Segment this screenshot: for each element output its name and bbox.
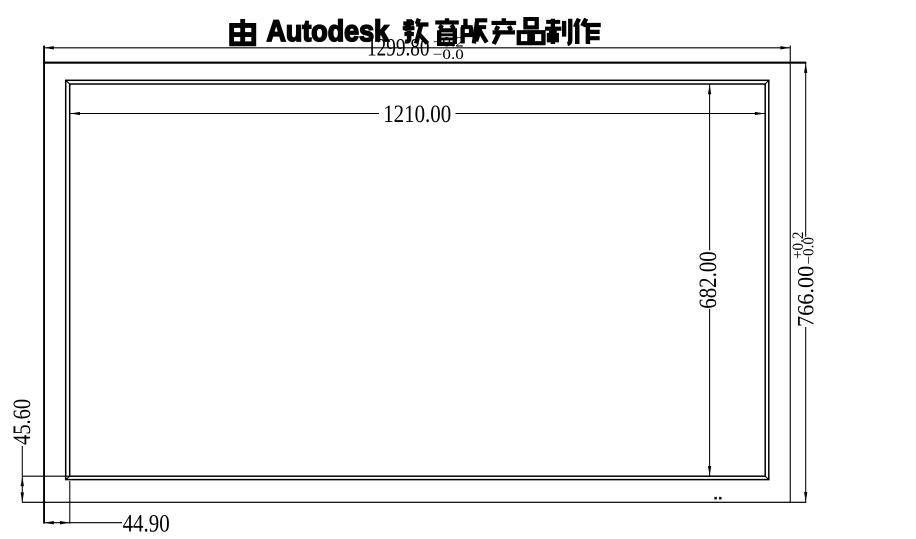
svg-text:1210.00: 1210.00 [383,101,451,128]
svg-text:Autodesk: Autodesk [267,15,390,48]
svg-text:45.60: 45.60 [9,399,36,445]
svg-text:44.90: 44.90 [123,511,170,538]
svg-text:−0.0: −0.0 [433,47,464,63]
svg-text:−0.0: −0.0 [801,237,818,265]
svg-text:766.00: 766.00 [794,266,820,327]
svg-text:682.00: 682.00 [695,251,722,308]
